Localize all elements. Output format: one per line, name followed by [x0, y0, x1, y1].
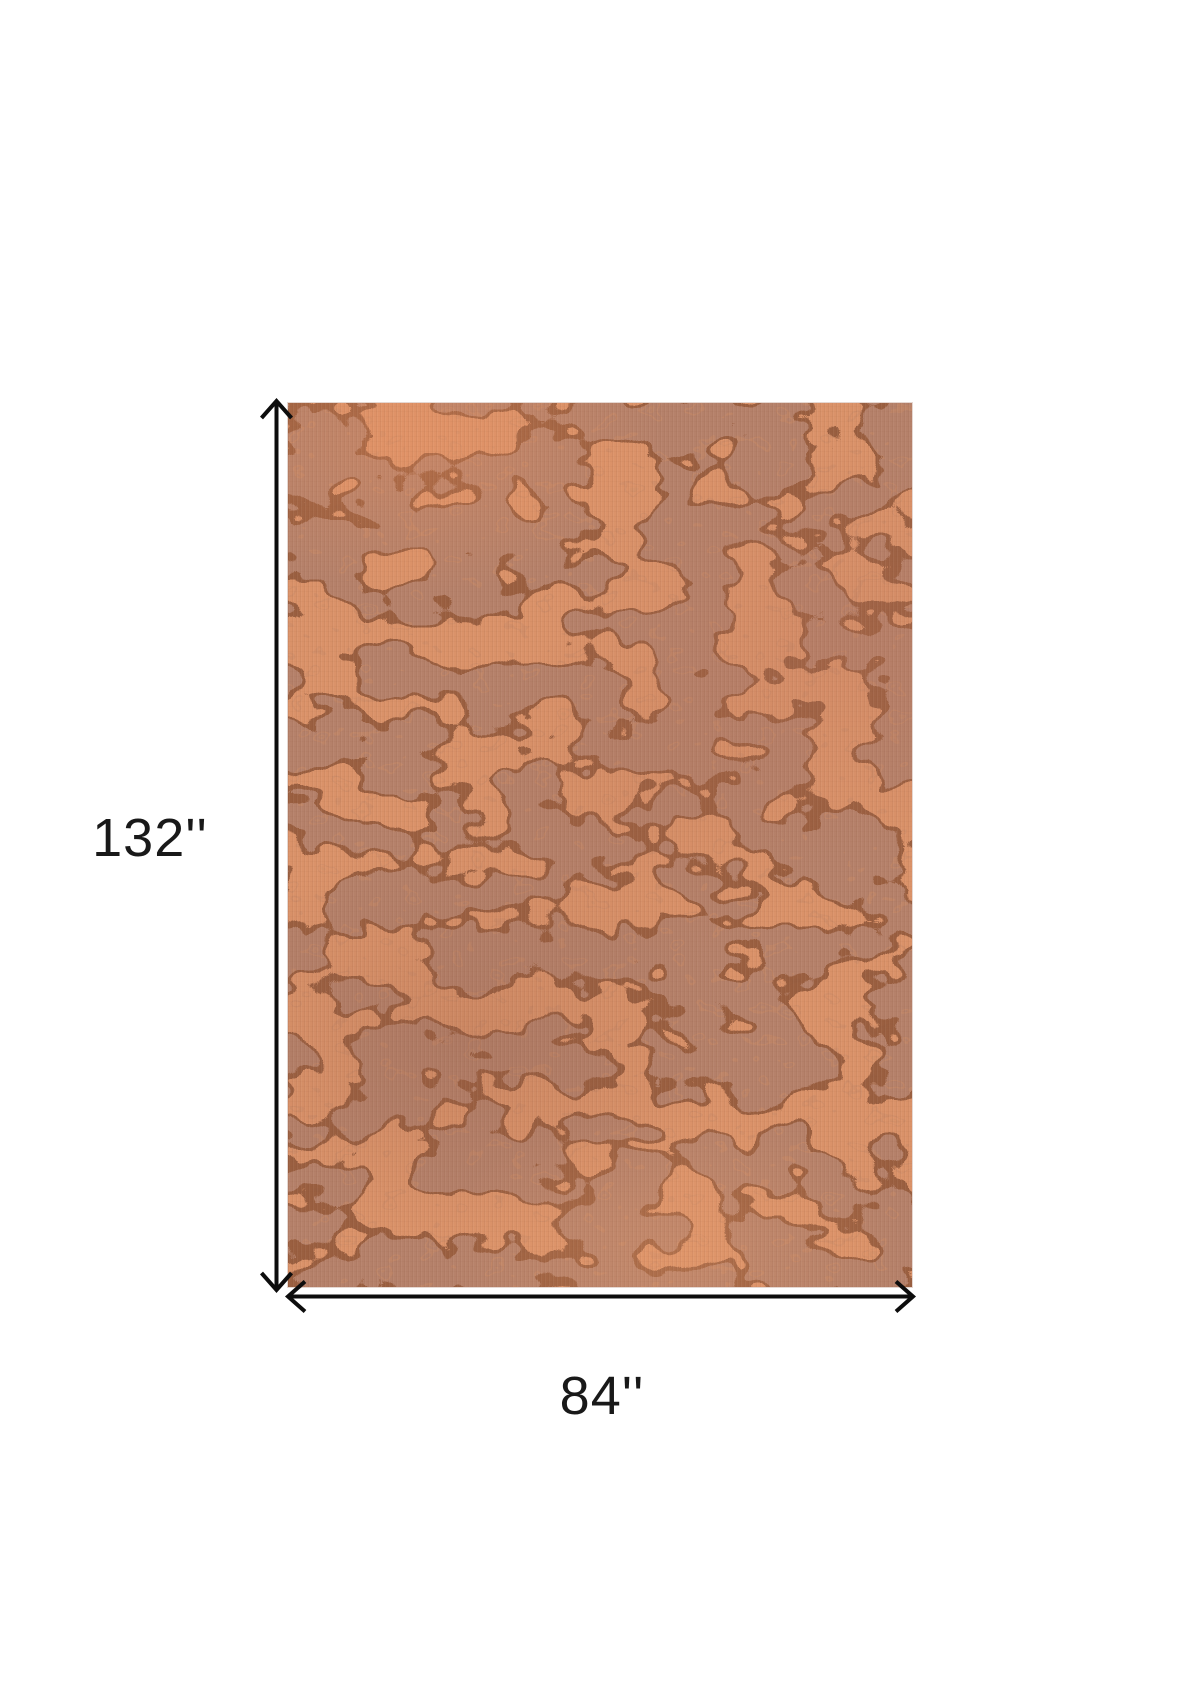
height-arrow-head-up-icon [262, 401, 292, 418]
width-dimension-label: 84'' [482, 1364, 722, 1428]
height-dimension-arrow [262, 401, 292, 1290]
rug-weave-texture [288, 403, 912, 1287]
rug-dimension-diagram: 132'' 84'' [0, 0, 1200, 1694]
rug-image [288, 403, 912, 1287]
height-arrow-head-down-icon [262, 1273, 292, 1290]
height-dimension-label: 132'' [60, 806, 240, 870]
